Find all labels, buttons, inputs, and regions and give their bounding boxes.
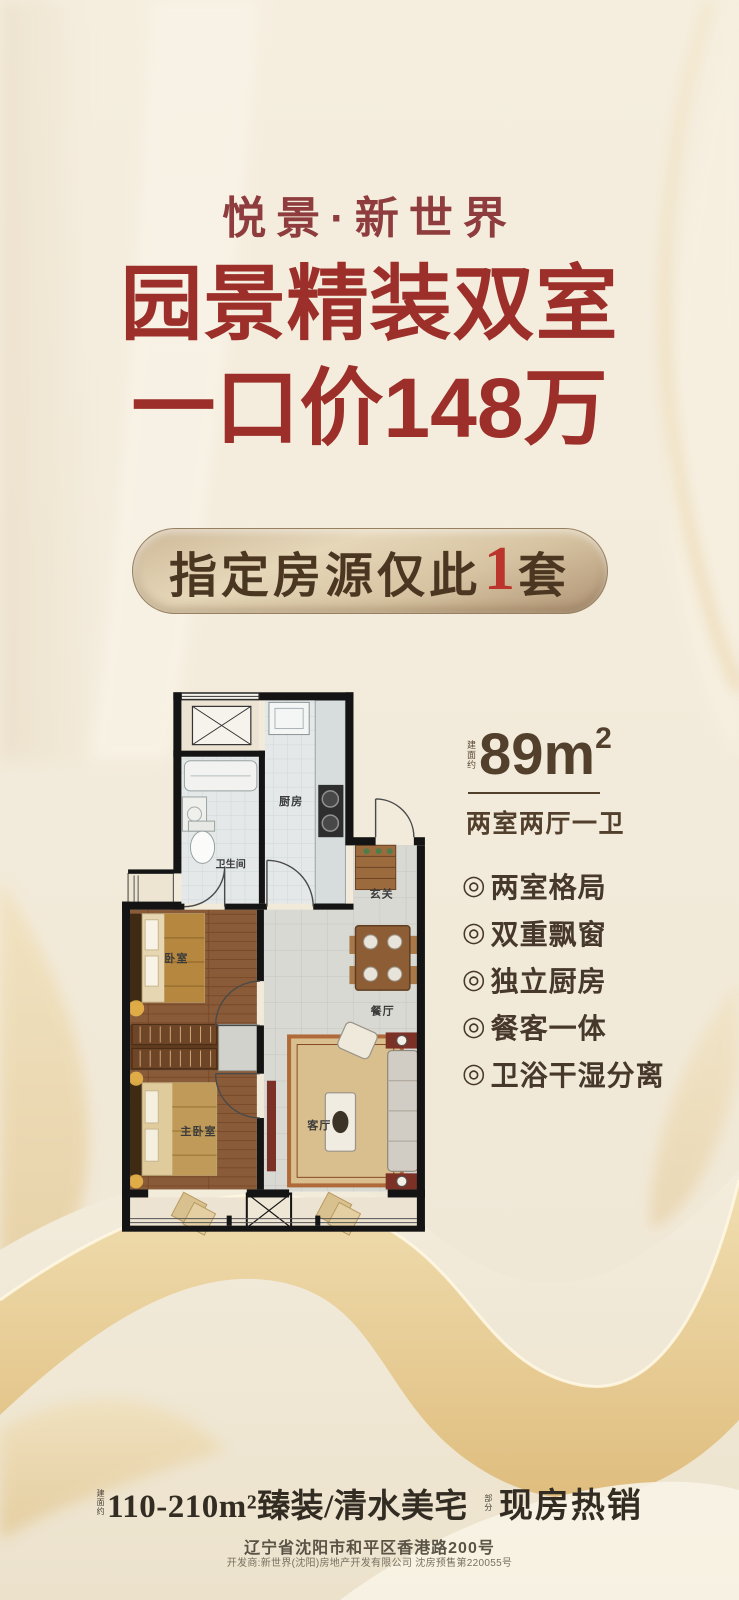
- feature-label: 餐客一体: [491, 1007, 607, 1047]
- feature-label: 卫浴干湿分离: [491, 1054, 665, 1094]
- feature-list: ◎ 两室格局 ◎ 双重飘窗 ◎ 独立厨房 ◎ 餐客一体 ◎ 卫浴干湿分离: [462, 862, 665, 1097]
- area-value: 89m2: [479, 726, 612, 784]
- unit-area: 建面约 89m2: [466, 726, 730, 784]
- room-label-living: 客厅: [306, 1118, 331, 1132]
- footer-headline: 建面约 110-210m²臻装/清水美宅 部分 现房热销: [0, 1478, 739, 1527]
- feature-label: 两室格局: [491, 866, 607, 906]
- feature-bullet-icon: ◎: [462, 919, 486, 946]
- room-label-bathroom: 卫生间: [216, 857, 246, 870]
- floor-plan: 厨房 卫生间 玄关 餐厅 客厅 卧室 主卧室: [118, 688, 436, 1238]
- feature-item: ◎ 独立厨房: [462, 956, 665, 1003]
- footer-partial-note: 部分: [484, 1494, 492, 1512]
- footer-range-text: 110-210m²臻装/清水美宅: [107, 1479, 468, 1527]
- offer-badge-suffix: 套: [518, 536, 570, 606]
- unit-layout: 两室两厅一卫: [466, 804, 730, 840]
- feature-label: 双重飘窗: [491, 913, 607, 953]
- feature-item: ◎ 餐客一体: [462, 1003, 665, 1050]
- feature-bullet-icon: ◎: [462, 966, 486, 993]
- offer-badge-prefix: 指定房源仅此: [169, 536, 481, 606]
- brand-title: 悦景·新世界: [0, 182, 739, 246]
- developer-disclaimer: 开发商:新世界(沈阳)房地产开发有限公司 沈房预售第220055号: [0, 1554, 739, 1569]
- unit-info: 建面约 89m2 两室两厅一卫: [466, 726, 730, 840]
- headline-line2: 一口价148万: [0, 362, 739, 454]
- footer-area-note: 建面约: [96, 1489, 104, 1516]
- room-label-foyer: 玄关: [370, 887, 394, 901]
- room-label-dining: 餐厅: [370, 1003, 395, 1017]
- feature-item: ◎ 双重飘窗: [462, 909, 665, 956]
- offer-badge: 指定房源仅此 1 套: [132, 528, 608, 614]
- room-label-kitchen: 厨房: [279, 794, 303, 808]
- area-note: 建面约: [466, 740, 475, 770]
- area-number: 89m: [479, 722, 595, 787]
- poster: 悦景·新世界 园景精装双室 一口价148万 指定房源仅此 1 套 建面约 89m…: [0, 0, 739, 1600]
- headline-line1: 园景精装双室: [0, 260, 739, 350]
- feature-bullet-icon: ◎: [462, 1013, 486, 1040]
- area-sup: 2: [595, 722, 612, 755]
- feature-item: ◎ 卫浴干湿分离: [462, 1050, 665, 1097]
- room-label-master-bedroom: 主卧室: [180, 1124, 216, 1138]
- feature-bullet-icon: ◎: [462, 872, 486, 899]
- feature-bullet-icon: ◎: [462, 1060, 486, 1087]
- offer-badge-number: 1: [484, 534, 515, 605]
- room-label-bedroom: 卧室: [164, 951, 188, 965]
- area-divider: [468, 792, 600, 794]
- feature-label: 独立厨房: [491, 960, 607, 1000]
- feature-item: ◎ 两室格局: [462, 862, 665, 909]
- footer-hot-sale-text: 现房热销: [499, 1478, 643, 1527]
